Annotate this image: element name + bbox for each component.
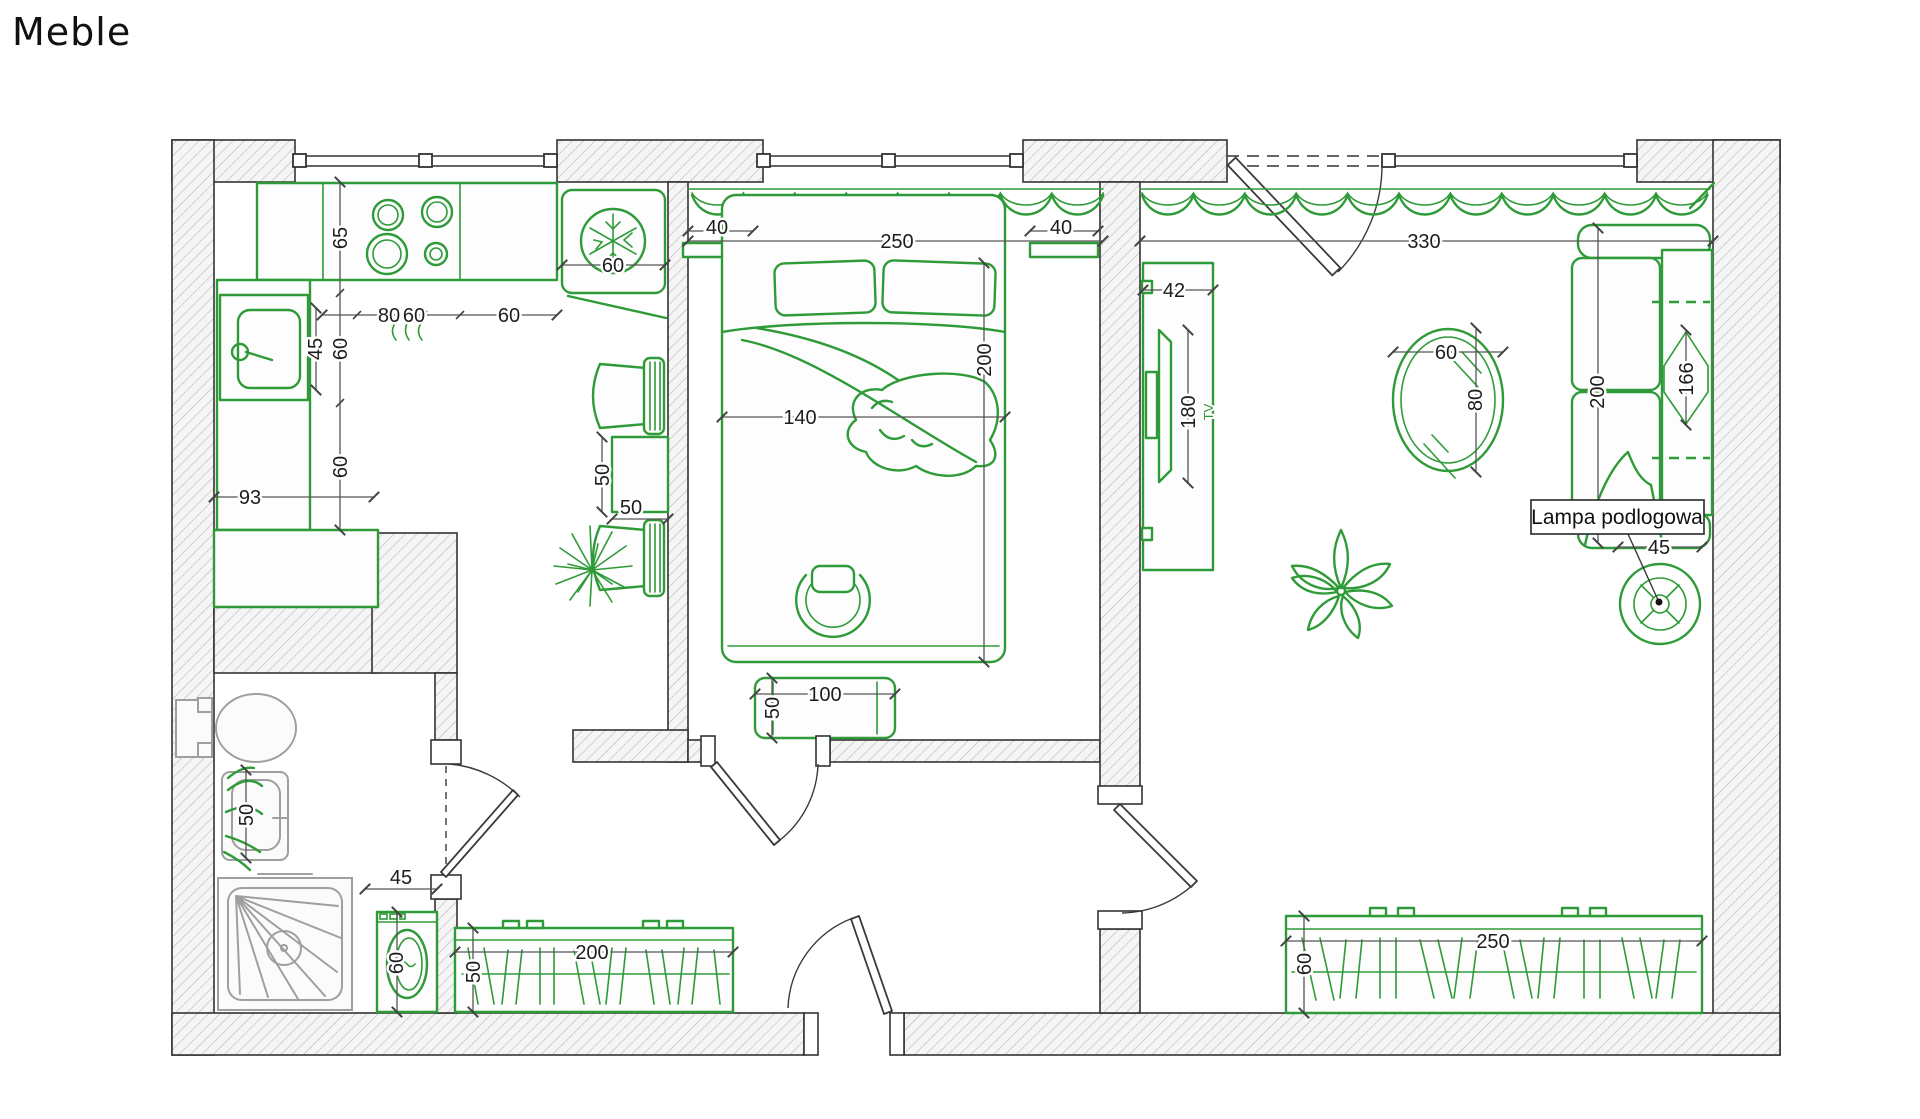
kitchen-chair-bottom [593,520,664,596]
floor-plan: 65 45 60 60 93 80 60 60 60 50 50 40 250 … [0,0,1920,1119]
hall-wardrobe [455,921,733,1012]
callout-label: Lampa podlogowa [1531,506,1703,529]
fridge-door-swing [568,296,666,318]
dim-mirror-height: 80 [1465,389,1487,411]
dim-tv-unit-depth: 42 [1163,280,1185,302]
dim-sofa-width: 166 [1676,362,1698,395]
dim-kitchen-left-depth-upper: 60 [330,338,352,360]
dim-kitchen-left-depth-lower: 60 [330,456,352,478]
bathroom-door [431,740,520,899]
living-curtain [1140,183,1714,215]
dim-bath-sink-width: 50 [236,804,258,826]
bedroom-door [701,736,830,845]
dim-nightstand-right: 40 [1050,217,1072,239]
dim-mirror-width: 60 [1435,342,1457,364]
dim-bench-width: 100 [808,684,841,706]
entrance-door [788,916,904,1055]
dim-hall-wardrobe-depth: 50 [463,961,485,983]
shower [218,874,352,1010]
kitchen-counter [257,183,557,280]
dim-nightstand-left: 40 [706,217,728,239]
nightstand-right [1030,243,1098,257]
tv-bracket [1146,372,1157,438]
dim-washer-depth: 60 [386,952,408,974]
dim-kitchen-chain-60a: 60 [403,305,425,327]
dim-living-wardrobe-width: 250 [1476,931,1509,953]
dim-kitchen-table-depth: 50 [592,464,614,486]
dim-kitchen-sink-width: 45 [305,338,327,360]
dim-kitchen-counter-depth: 65 [330,227,352,249]
hallway [455,921,733,1012]
dim-living-wardrobe-depth: 60 [1294,953,1316,975]
dim-hall-wardrobe-width: 200 [575,942,608,964]
kitchen-chair-top [593,358,664,434]
dim-bed-length: 200 [974,343,996,376]
tv-label: TV [1201,403,1216,420]
dim-bench-depth: 50 [762,697,784,719]
dim-kitchen-chain-80: 80 [378,305,400,327]
living-room [1142,225,1712,1013]
dim-living-window: 330 [1407,231,1440,253]
dim-lamp-diameter: 45 [1648,537,1670,559]
dim-kitchen-table-width: 50 [620,497,642,519]
kitchen-lower-cabinet [214,530,378,607]
fridge [562,190,666,318]
floor-plan-page: Meble [0,0,1920,1119]
dim-kitchen-cabinet-width: 93 [239,487,261,509]
dim-fridge-width: 60 [602,255,624,277]
living-wardrobe [1286,908,1702,1013]
dim-sofa-length: 200 [1587,375,1609,408]
floor-lamp-callout: Lampa podlogowa [1531,500,1704,606]
toilet [176,694,296,762]
dim-kitchen-chain-60b: 60 [498,305,520,327]
dim-tv-unit-length: 180 [1178,395,1200,428]
kitchen-sink-counter [217,280,310,530]
dim-washer-width: 45 [390,867,412,889]
tv-screen [1159,330,1171,482]
living-plant-icon [1292,530,1392,638]
dim-bed-width: 140 [783,407,816,429]
dim-bedroom-window: 250 [880,231,913,253]
bed [722,195,1005,662]
living-room-door [1098,786,1197,929]
